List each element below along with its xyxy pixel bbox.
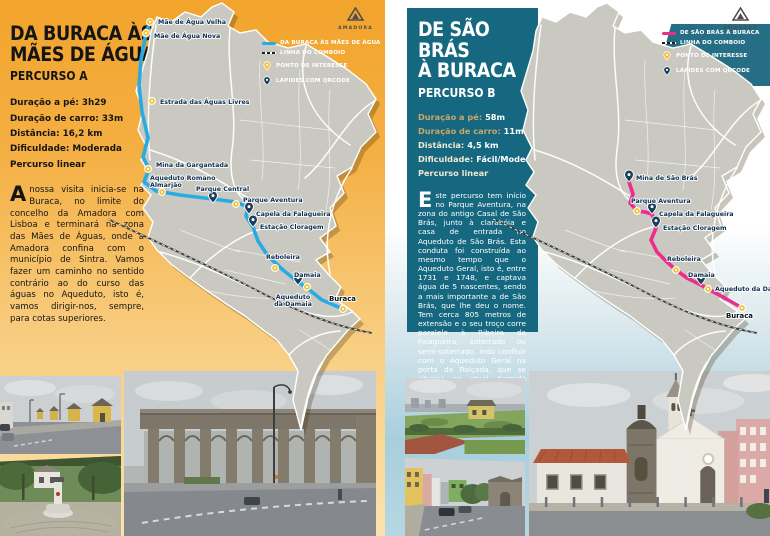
- amadora-logo-text: AMADORA: [338, 26, 373, 31]
- qr-pin-icon: [262, 75, 272, 86]
- legend-label: PONTO DE INTERESSE: [276, 63, 347, 69]
- route-subtitle: PERCURSO A: [10, 69, 162, 83]
- qr-marker: [697, 273, 706, 285]
- stat-value: 11m: [504, 126, 524, 136]
- poi-marker: [634, 208, 641, 215]
- amadora-routes-leaflet: Mãe de Água VelhaMãe de Água NovaEstrada…: [0, 0, 770, 536]
- route-description: Este percurso tem início no Parque Avent…: [418, 191, 526, 393]
- description-text: nossa visita inicia-se na Buraca, no lim…: [10, 185, 144, 324]
- stat-label: Duração a pé:: [418, 112, 482, 122]
- dropcap: A: [10, 186, 26, 202]
- legend-label: LINHA DO COMBOIO: [680, 40, 745, 46]
- qr-pin-icon: [662, 65, 672, 76]
- map-label: Damaia: [294, 272, 321, 279]
- qr-marker: [625, 170, 634, 182]
- map-label: Aquedutoda Damaia: [274, 294, 312, 308]
- stat-label: Percurso linear: [10, 160, 85, 170]
- stat-value: 33m: [102, 114, 123, 124]
- qr-marker: [209, 191, 218, 203]
- legend-item: LINHA DO COMBOIO: [662, 40, 766, 46]
- stat-label: Distância:: [418, 140, 464, 150]
- map-label: Damaia: [688, 272, 715, 279]
- route-title-line2: MÃES DE ÁGUA: [10, 43, 155, 66]
- map-pins: [625, 170, 746, 311]
- legend-item: PONTO DE INTERESSE: [262, 60, 382, 71]
- route-title-line1: DE SÃO BRÁS: [418, 18, 489, 62]
- stat-row: Dificuldade:Moderada: [10, 142, 162, 157]
- legend-label: LINHA DO COMBOIO: [280, 50, 345, 56]
- legend-item: LINHA DO COMBOIO: [262, 50, 382, 56]
- stat-row: Distância:16,2 km: [10, 127, 162, 142]
- legend-label: DA BURACA ÀS MÃES DE ÁGUA: [280, 40, 381, 46]
- qr-marker: [249, 215, 258, 227]
- photo-street-buildings: [405, 458, 525, 536]
- map-label: Capela da Falagueira: [659, 211, 734, 218]
- percurso-a-page: Mãe de Água VelhaMãe de Água NovaEstrada…: [0, 0, 385, 536]
- map-label: Mina de São Brás: [636, 174, 698, 182]
- stat-row: Duração a pé:58m: [418, 111, 528, 125]
- stat-label: Duração de carro:: [10, 114, 99, 124]
- map-legend: DA BURACA ÀS MÃES DE ÁGUALINHA DO COMBOI…: [262, 40, 382, 90]
- map-label: Estação Cloragem: [663, 225, 727, 232]
- percurso-b-page: Mina de São BrásParque AventuraCapela da…: [385, 0, 770, 536]
- legend-item: LÁPIDES COM QRCODE: [262, 75, 382, 86]
- poi-marker: [233, 201, 240, 208]
- legend-label: LÁPIDES COM QRCODE: [676, 68, 750, 74]
- route-description: A nossa visita inicia-se na Buraca, no l…: [10, 185, 144, 325]
- poi-marker: [673, 267, 680, 274]
- map-label: Aqueduto da Damaia: [715, 286, 770, 293]
- map-label: Reboleira: [667, 256, 701, 263]
- dropcap: E: [418, 192, 432, 208]
- map-label: Capela da Falagueira: [256, 211, 331, 218]
- map-label: Mãe de Água Velha: [158, 17, 226, 26]
- map-label: Estação Cloragem: [260, 224, 324, 231]
- route-subtitle: PERCURSO B: [418, 86, 528, 100]
- route-stats: Duração a pé:3h29Duração de carro:33mDis…: [10, 96, 162, 173]
- stat-row: Percurso linear: [10, 158, 162, 173]
- photo-fountain-park: [0, 456, 121, 536]
- stat-value: Fácil/Moderada: [476, 154, 546, 164]
- stat-value: 3h29: [82, 98, 107, 108]
- route-title-line2: À BURACA: [418, 59, 516, 82]
- stat-value: 58m: [485, 112, 505, 122]
- map-label: Parque Central: [196, 186, 249, 193]
- legend-label: PONTO DE INTERESSE: [676, 53, 747, 59]
- route-title: DA BURACA ÀS MÃES DE ÁGUA: [10, 24, 162, 65]
- route-header: DE SÃO BRÁS À BURACA PERCURSO B Duração …: [407, 8, 538, 332]
- stat-row: Duração de carro:11m: [418, 125, 528, 139]
- stat-label: Dificuldade:: [10, 144, 69, 154]
- description-text: ste percurso tem início no Parque Aventu…: [418, 191, 526, 393]
- route-line-swatch: [262, 42, 276, 45]
- stat-label: Percurso linear: [418, 168, 488, 178]
- stat-label: Dificuldade:: [418, 154, 473, 164]
- route-title-line1: DA BURACA ÀS: [10, 22, 153, 45]
- stat-row: Duração de carro:33m: [10, 112, 162, 127]
- qr-marker: [245, 202, 254, 214]
- route-header: DA BURACA ÀS MÃES DE ÁGUA PERCURSO A Dur…: [10, 24, 162, 326]
- poi-marker: [272, 265, 279, 272]
- stat-row: Distância:4,5 km: [418, 139, 528, 153]
- stat-row: Duração a pé:3h29: [10, 96, 162, 111]
- route-line-swatch: [662, 32, 676, 35]
- train-line-swatch: [262, 52, 276, 55]
- stat-value: 4,5 km: [467, 140, 498, 150]
- stat-row: Percurso linear: [418, 167, 528, 181]
- poi-marker: [304, 284, 311, 291]
- stat-label: Distância:: [10, 129, 60, 139]
- map-label: Parque Aventura: [631, 198, 691, 205]
- poi-marker: [340, 306, 347, 313]
- legend-label: LÁPIDES COM QRCODE: [276, 78, 350, 84]
- amadora-logo-text: AMADORA: [723, 26, 758, 31]
- route-stats: Duração a pé:58mDuração de carro:11mDist…: [418, 111, 528, 181]
- map-label: Mina da Gargantada: [156, 162, 228, 169]
- legend-item: DA BURACA ÀS MÃES DE ÁGUA: [262, 40, 382, 46]
- photo-casal-sao-bras-field: [405, 378, 525, 454]
- amadora-emblem-icon: [347, 7, 364, 21]
- stat-row: Dificuldade:Fácil/Moderada: [418, 153, 528, 167]
- map-label: Parque Aventura: [243, 197, 303, 204]
- stat-label: Duração de carro:: [418, 126, 501, 136]
- map-legend: DE SÃO BRÁS À BURACALINHA DO COMBOIO PON…: [662, 30, 766, 80]
- map-label: Mãe de Água Nova: [154, 31, 220, 40]
- poi-marker: [705, 286, 712, 293]
- map-label: Buraca: [329, 295, 356, 303]
- legend-item: LÁPIDES COM QRCODE: [662, 65, 766, 76]
- stat-value: 16,2 km: [63, 129, 103, 139]
- map-label: Buraca: [726, 312, 753, 320]
- qr-marker: [294, 273, 303, 285]
- amadora-logo: AMADORA: [723, 6, 758, 31]
- train-line-swatch: [662, 42, 676, 45]
- stat-value: Moderada: [72, 144, 122, 154]
- route-line: [629, 182, 742, 308]
- legend-item: PONTO DE INTERESSE: [662, 50, 766, 61]
- stat-label: Duração a pé:: [10, 98, 79, 108]
- poi-marker: [739, 305, 746, 312]
- map-label: Estrada das Águas Livres: [160, 97, 250, 106]
- photo-claraboias-street: [0, 376, 121, 454]
- map-labels: Mina de São BrásParque AventuraCapela da…: [631, 174, 770, 320]
- amadora-logo: AMADORA: [338, 6, 373, 31]
- qr-marker: [652, 216, 661, 228]
- qr-marker: [648, 202, 657, 214]
- photo-aqueduct-arches: [124, 371, 376, 536]
- photo-chapel: [529, 371, 770, 536]
- map-label: Reboleira: [266, 254, 300, 261]
- amadora-emblem-icon: [732, 7, 749, 21]
- route-title: DE SÃO BRÁS À BURACA: [418, 20, 528, 82]
- poi-pin-icon: [262, 60, 272, 71]
- poi-pin-icon: [662, 50, 672, 61]
